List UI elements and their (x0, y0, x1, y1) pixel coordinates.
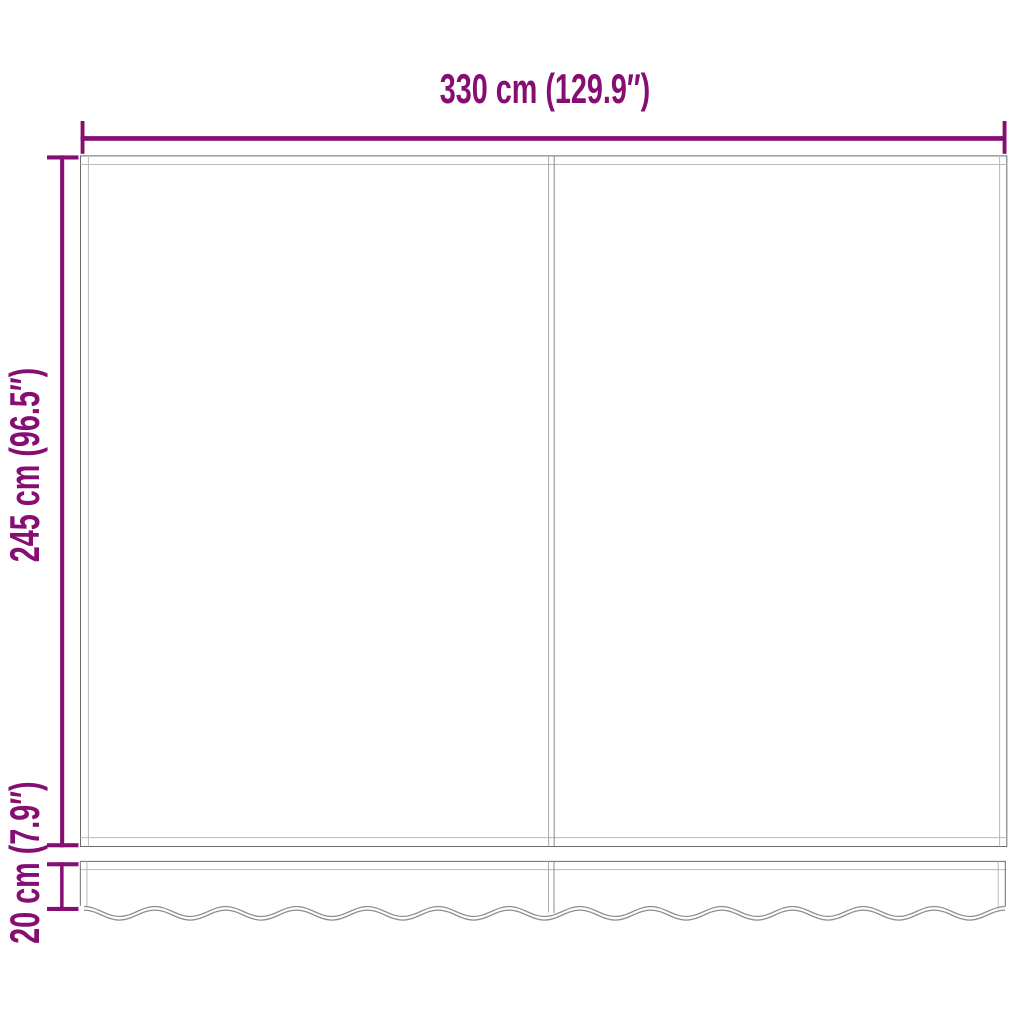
svg-text:245 cm (96.5″): 245 cm (96.5″) (0, 368, 48, 562)
svg-text:330 cm (129.9″): 330 cm (129.9″) (440, 64, 650, 112)
svg-text:20 cm (7.9″): 20 cm (7.9″) (0, 781, 48, 943)
